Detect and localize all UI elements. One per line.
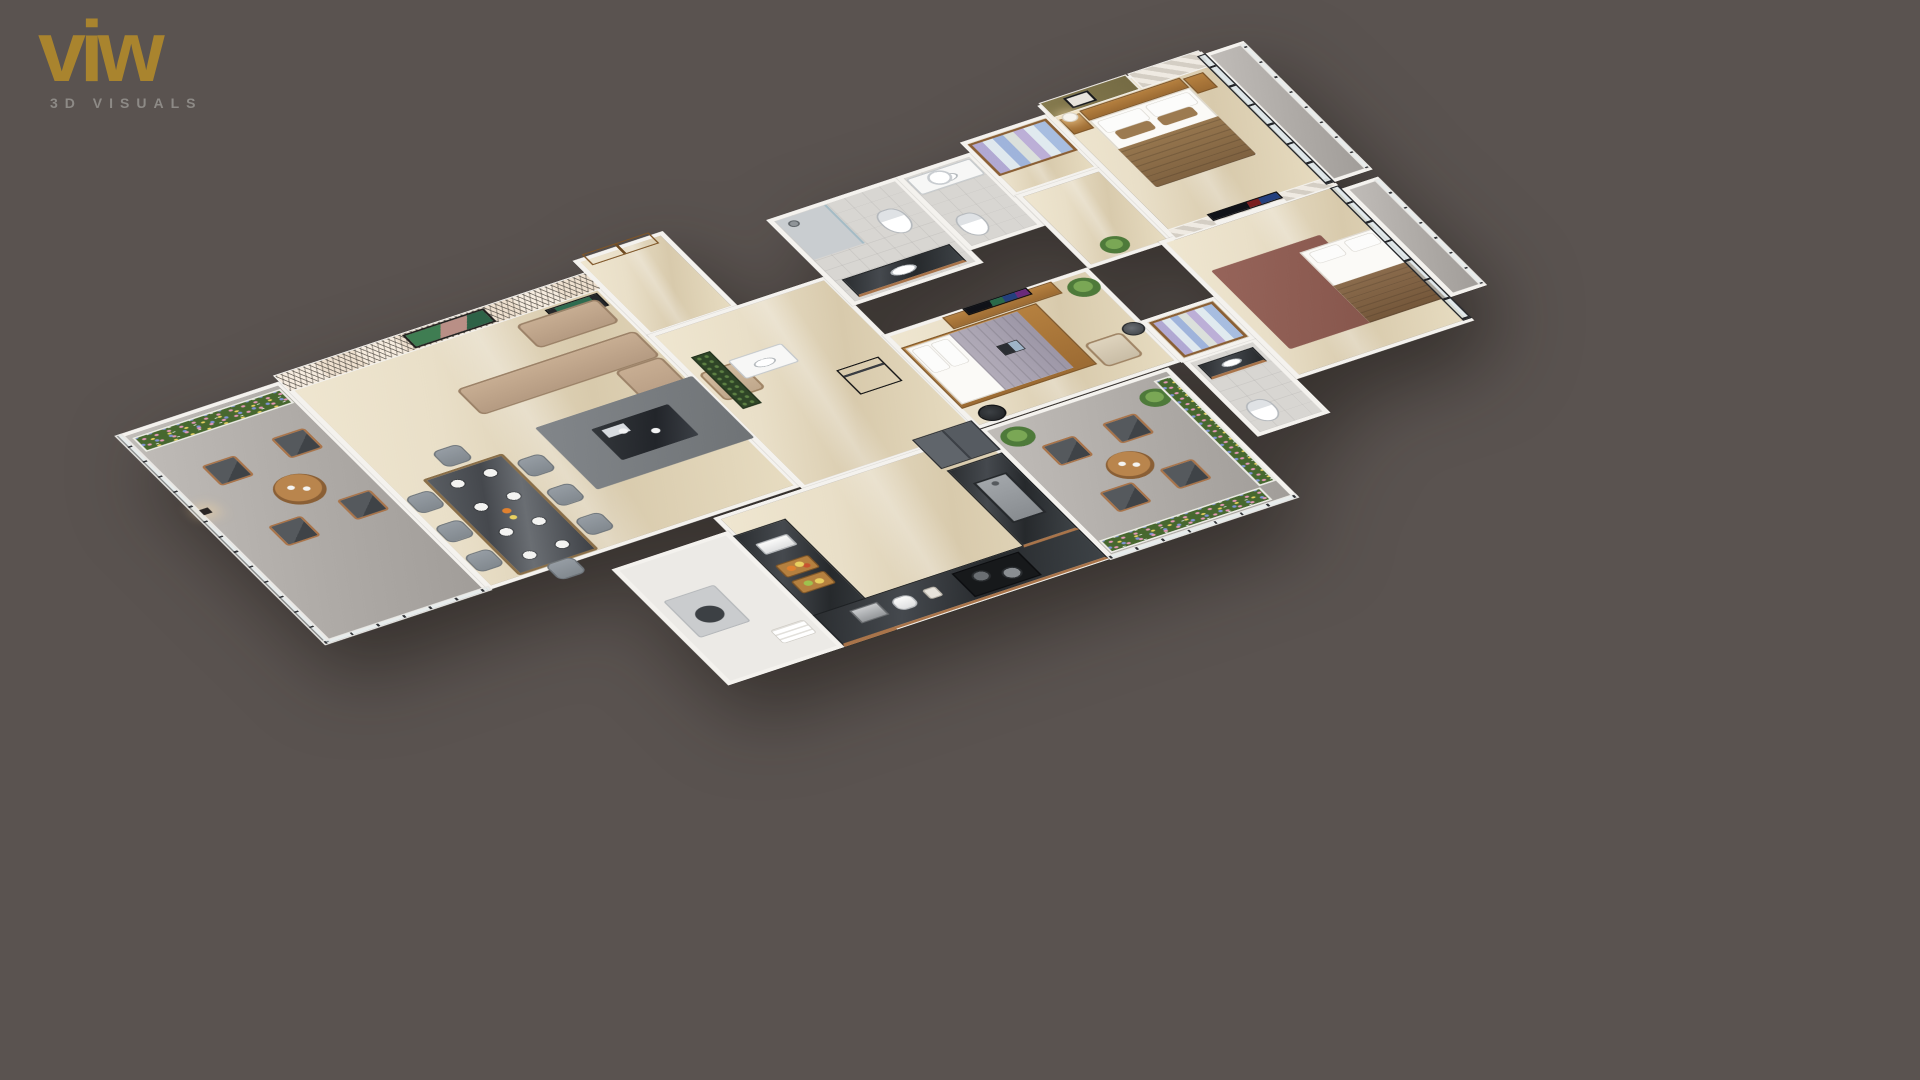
logo-tagline-text: 3D VISUALS — [50, 95, 202, 111]
floorplan-3d-scene — [70, 30, 1612, 791]
logo: viw 3D VISUALS — [38, 14, 202, 111]
render-canvas: viw 3D VISUALS — [0, 0, 1920, 1080]
logo-brand-text: viw — [38, 14, 202, 91]
